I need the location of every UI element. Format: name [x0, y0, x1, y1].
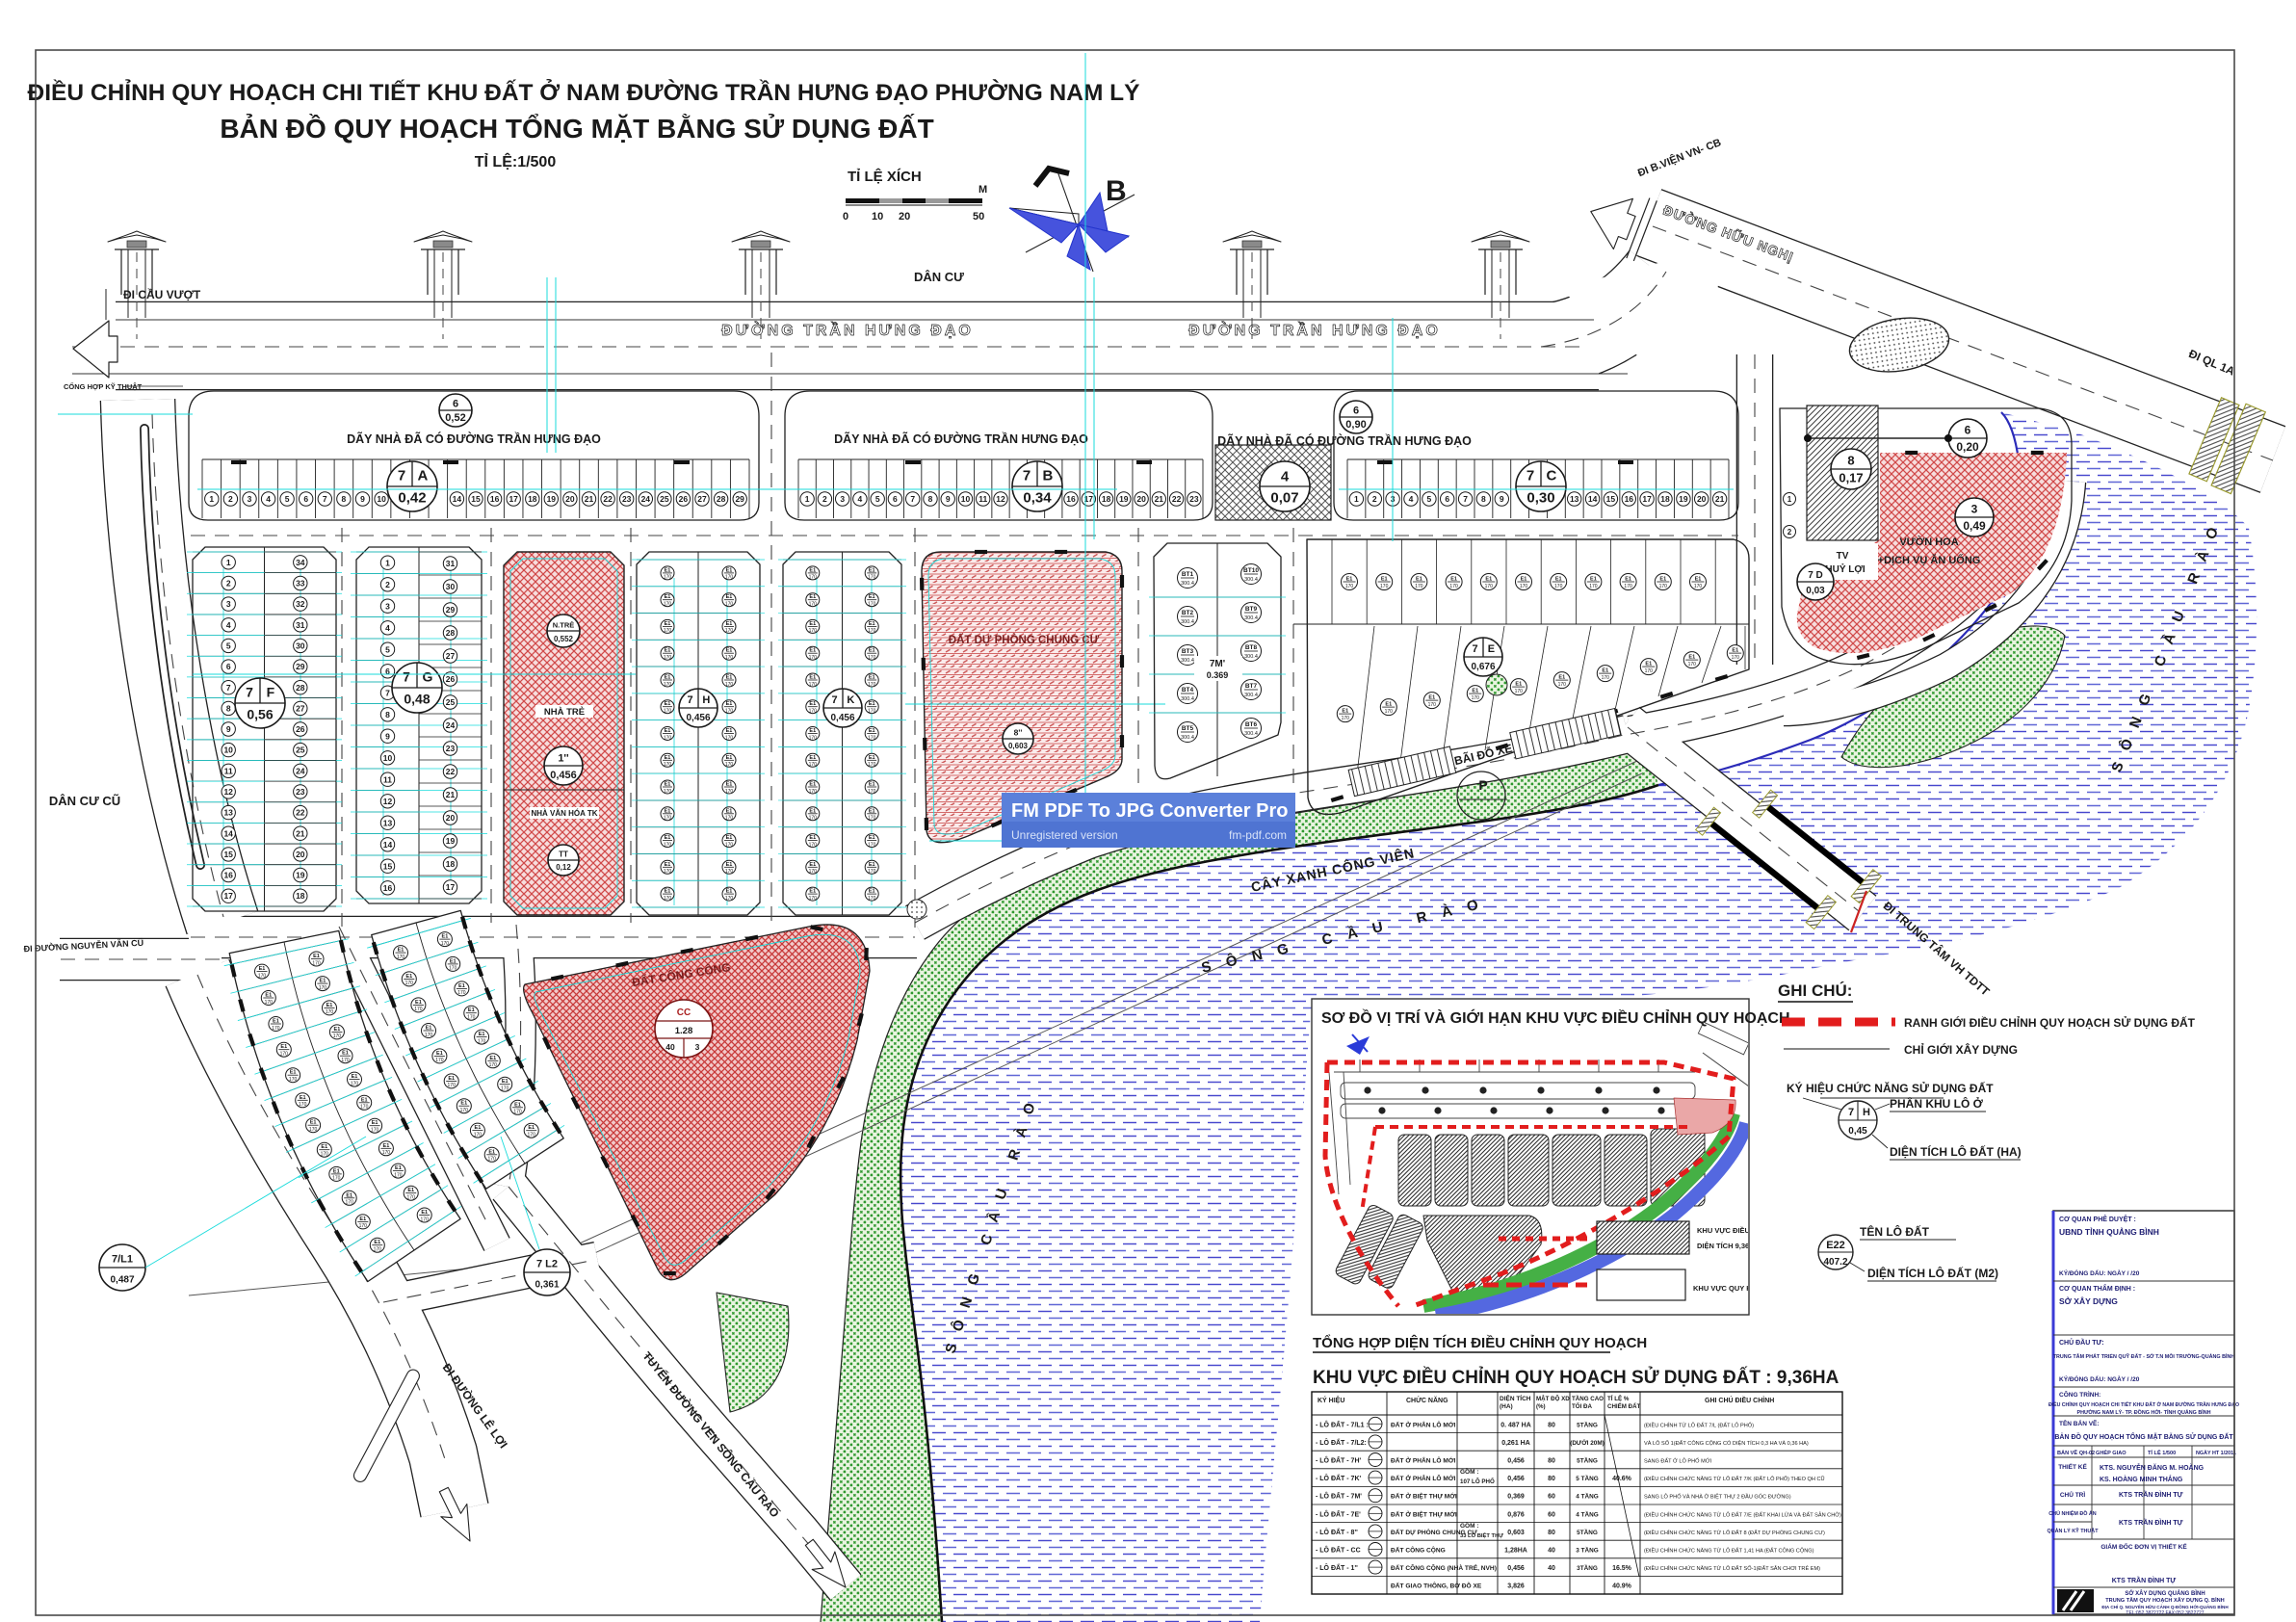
svg-text:170: 170 — [1385, 709, 1394, 715]
svg-text:7: 7 — [323, 494, 327, 504]
svg-text:DÂN CƯ CŨ: DÂN CƯ CŨ — [49, 794, 120, 808]
svg-text:BT7: BT7 — [1245, 683, 1258, 690]
svg-text:12: 12 — [383, 797, 393, 806]
svg-text:E1: E1 — [374, 1240, 380, 1245]
svg-text:170: 170 — [351, 1081, 359, 1086]
svg-text:E1: E1 — [489, 1056, 496, 1061]
svg-text:300.4: 300.4 — [1244, 615, 1258, 621]
svg-text:170: 170 — [1345, 584, 1354, 589]
svg-text:E1: E1 — [1645, 662, 1652, 667]
svg-text:7M': 7M' — [1210, 659, 1225, 669]
svg-text:7/L1: 7/L1 — [112, 1254, 133, 1266]
svg-text:27: 27 — [296, 703, 305, 713]
svg-text:170: 170 — [868, 842, 876, 848]
svg-text:CÔNG TRÌNH:: CÔNG TRÌNH: — [2059, 1390, 2100, 1399]
svg-text:P: P — [1478, 777, 1487, 793]
svg-text:17: 17 — [1642, 494, 1652, 504]
svg-text:170: 170 — [725, 762, 734, 768]
svg-text:NHÀ VĂN HÓA TK: NHÀ VĂN HÓA TK — [531, 809, 597, 818]
svg-text:170: 170 — [1558, 682, 1567, 688]
svg-text:170: 170 — [1624, 584, 1632, 589]
svg-text:3: 3 — [1971, 503, 1978, 516]
svg-text:KHU VỰC ĐIỀU CHỈNH QUY HOẠCH S: KHU VỰC ĐIỀU CHỈNH QUY HOẠCH SỬ DỤNG ĐẤT… — [1313, 1367, 1839, 1388]
svg-text:NHÀ TRẺ: NHÀ TRẺ — [544, 706, 585, 718]
svg-text:E1: E1 — [869, 755, 875, 761]
svg-text:TỈ LỆ 1/500: TỈ LỆ 1/500 — [2148, 1449, 2176, 1456]
svg-text:170: 170 — [488, 1157, 497, 1163]
svg-text:6: 6 — [893, 494, 898, 504]
svg-text:E1: E1 — [468, 1007, 475, 1013]
svg-text:300.4: 300.4 — [1181, 696, 1194, 702]
svg-text:E1: E1 — [1381, 577, 1388, 583]
svg-text:SANG ĐẤT Ở LÔ PHỐ MỚI: SANG ĐẤT Ở LÔ PHỐ MỚI — [1644, 1458, 1712, 1465]
svg-text:170: 170 — [272, 1026, 280, 1032]
svg-text:60: 60 — [1548, 1511, 1555, 1518]
svg-text:170: 170 — [332, 1176, 341, 1182]
svg-text:170: 170 — [299, 1102, 307, 1108]
svg-text:E1: E1 — [726, 648, 733, 654]
svg-text:9: 9 — [360, 494, 365, 504]
svg-text:6: 6 — [226, 662, 231, 671]
svg-text:E1: E1 — [359, 1216, 366, 1222]
svg-text:SƠ ĐỒ VỊ TRÍ VÀ GIỚI HẠN KHU V: SƠ ĐỒ VỊ TRÍ VÀ GIỚI HẠN KHU VỰC ĐIỀU CH… — [1321, 1008, 1790, 1027]
svg-text:TRUNG TÂM PHÁT TRIỂN QUỸ ĐẤT -: TRUNG TÂM PHÁT TRIỂN QUỸ ĐẤT - SỞ T.N MÔ… — [2053, 1352, 2235, 1360]
svg-text:E1: E1 — [869, 862, 875, 868]
svg-text:N.TRẺ: N.TRẺ — [553, 620, 575, 629]
svg-text:E1: E1 — [326, 1003, 333, 1008]
svg-text:CHỦ NHIỆM ĐỒ ÁN: CHỦ NHIỆM ĐỒ ÁN — [2048, 1509, 2097, 1517]
svg-text:0,56: 0,56 — [247, 707, 273, 722]
svg-text:170: 170 — [664, 896, 672, 902]
svg-text:25: 25 — [660, 494, 669, 504]
svg-text:ĐƯỜNG TRẦN HƯNG ĐẠO: ĐƯỜNG TRẦN HƯNG ĐẠO — [721, 321, 974, 339]
svg-text:16.5%: 16.5% — [1612, 1565, 1632, 1572]
svg-text:170: 170 — [312, 960, 321, 966]
svg-text:32: 32 — [296, 599, 305, 609]
svg-text:E1: E1 — [290, 1070, 297, 1076]
svg-text:E1: E1 — [869, 675, 875, 681]
svg-text:170: 170 — [489, 1062, 498, 1068]
svg-text:E1: E1 — [415, 1000, 422, 1006]
svg-text:F: F — [267, 685, 275, 700]
svg-text:1: 1 — [1787, 495, 1792, 504]
svg-text:E1: E1 — [869, 728, 875, 734]
svg-text:ĐIỀU CHỈNH QUY HOẠCH CHI TIẾT: ĐIỀU CHỈNH QUY HOẠCH CHI TIẾT KHU ĐẤT Ở … — [2048, 1400, 2239, 1408]
svg-text:21: 21 — [1155, 494, 1164, 504]
svg-text:7: 7 — [1526, 468, 1534, 484]
svg-text:31: 31 — [296, 620, 305, 630]
svg-text:SANG LÔ PHỐ VÀ NHÀ Ở BIỆT THỰ: SANG LÔ PHỐ VÀ NHÀ Ở BIỆT THỰ 2 ĐẦU GÓC … — [1644, 1493, 1791, 1501]
svg-text:170: 170 — [725, 682, 734, 688]
svg-text:18: 18 — [296, 891, 305, 901]
svg-text:170: 170 — [664, 762, 672, 768]
svg-text:E1: E1 — [809, 594, 816, 600]
svg-text:E1: E1 — [869, 808, 875, 814]
svg-text:TẦNG CAO: TẦNG CAO — [1572, 1396, 1604, 1402]
svg-text:ĐẤT DỰ PHÒNG CHUNG CƯ: ĐẤT DỰ PHÒNG CHUNG CƯ — [949, 634, 1100, 646]
svg-text:E1: E1 — [869, 621, 875, 627]
svg-text:300.4: 300.4 — [1181, 581, 1194, 587]
svg-text:E1: E1 — [320, 979, 326, 984]
svg-text:0,03: 0,03 — [1806, 586, 1825, 596]
svg-text:170: 170 — [1380, 584, 1389, 589]
svg-text:8: 8 — [1481, 494, 1486, 504]
svg-text:20: 20 — [1697, 494, 1707, 504]
svg-text:E1: E1 — [665, 755, 671, 761]
svg-text:E1: E1 — [448, 1076, 455, 1082]
svg-text:0,12: 0,12 — [556, 863, 571, 872]
svg-text:7: 7 — [832, 694, 838, 706]
svg-text:ĐIỀU CHỈNH QUY HOẠCH CHI TIẾT: ĐIỀU CHỈNH QUY HOẠCH CHI TIẾT KHU ĐẤT Ở … — [28, 78, 1140, 106]
svg-text:170: 170 — [725, 602, 734, 608]
svg-text:1.28: 1.28 — [675, 1026, 693, 1036]
svg-text:170: 170 — [725, 735, 734, 741]
svg-text:4: 4 — [385, 623, 390, 633]
svg-text:170: 170 — [309, 1127, 318, 1133]
svg-text:9: 9 — [946, 494, 951, 504]
svg-text:17: 17 — [223, 891, 233, 901]
svg-text:E1: E1 — [346, 1192, 352, 1198]
svg-text:31: 31 — [446, 559, 456, 568]
svg-text:24: 24 — [641, 494, 651, 504]
svg-text:170: 170 — [725, 655, 734, 661]
svg-text:170: 170 — [664, 842, 672, 848]
svg-text:TT: TT — [559, 850, 568, 858]
svg-text:300.4: 300.4 — [1181, 658, 1194, 664]
svg-text:25: 25 — [446, 697, 456, 707]
svg-text:TÊN LÔ ĐẤT: TÊN LÔ ĐẤT — [1860, 1224, 1930, 1239]
svg-text:170: 170 — [809, 869, 818, 875]
svg-text:4: 4 — [1281, 468, 1290, 484]
svg-text:E1: E1 — [665, 621, 671, 627]
svg-text:E1: E1 — [665, 675, 671, 681]
svg-text:170: 170 — [725, 789, 734, 795]
svg-text:19: 19 — [1119, 494, 1129, 504]
svg-text:300.4: 300.4 — [1244, 654, 1258, 660]
svg-text:170: 170 — [1449, 584, 1458, 589]
svg-text:E1: E1 — [809, 862, 816, 868]
svg-text:E1: E1 — [273, 1019, 279, 1025]
svg-text:300.4: 300.4 — [1244, 693, 1258, 698]
svg-text:170: 170 — [664, 575, 672, 581]
svg-text:8: 8 — [385, 710, 390, 719]
svg-text:170: 170 — [1602, 675, 1610, 681]
svg-text:0,552: 0,552 — [554, 635, 574, 643]
svg-text:170: 170 — [868, 896, 876, 902]
svg-text:7: 7 — [1473, 643, 1478, 655]
svg-text:5: 5 — [385, 644, 390, 654]
svg-text:E1: E1 — [1602, 668, 1608, 674]
svg-text:CƠ QUAN THẨM ĐỊNH :: CƠ QUAN THẨM ĐỊNH : — [2059, 1284, 2135, 1293]
svg-text:33: 33 — [296, 579, 305, 589]
svg-text:E1: E1 — [265, 993, 272, 999]
svg-text:7: 7 — [1023, 468, 1031, 484]
svg-text:E1: E1 — [726, 862, 733, 868]
svg-text:5: 5 — [875, 494, 880, 504]
svg-text:C: C — [1546, 468, 1556, 484]
svg-text:170: 170 — [394, 1172, 403, 1178]
svg-text:16: 16 — [490, 494, 500, 504]
svg-text:DÃY NHÀ ĐÃ CÓ ĐƯỜNG TRẦN HƯNG: DÃY NHÀ ĐÃ CÓ ĐƯỜNG TRẦN HƯNG ĐẠO — [834, 432, 1088, 446]
svg-text:ĐƯỜNG TRẦN HƯNG ĐẠO: ĐƯỜNG TRẦN HƯNG ĐẠO — [1188, 321, 1441, 339]
svg-text:170: 170 — [868, 602, 876, 608]
svg-text:H: H — [702, 694, 710, 706]
svg-text:300.4: 300.4 — [1181, 619, 1194, 625]
svg-text:21: 21 — [296, 828, 305, 838]
svg-text:0,369: 0,369 — [1507, 1494, 1525, 1501]
svg-text:28: 28 — [296, 683, 305, 693]
svg-text:MẬT ĐỘ XD: MẬT ĐỘ XD — [1536, 1395, 1570, 1402]
svg-text:(%): (%) — [1536, 1403, 1546, 1410]
svg-text:12: 12 — [223, 787, 233, 797]
svg-text:13: 13 — [223, 808, 233, 818]
svg-text:14: 14 — [223, 828, 233, 838]
svg-text:170: 170 — [513, 1110, 522, 1115]
svg-text:13: 13 — [1570, 494, 1579, 504]
svg-text:CHỦ TRÌ: CHỦ TRÌ — [2060, 1490, 2086, 1499]
svg-text:170: 170 — [868, 628, 876, 634]
svg-text:KÝ HIỆU: KÝ HIỆU — [1318, 1396, 1344, 1404]
svg-text:7: 7 — [398, 468, 405, 484]
svg-text:170: 170 — [441, 941, 450, 947]
svg-text:E1: E1 — [514, 1102, 521, 1108]
svg-text:170: 170 — [725, 869, 734, 875]
svg-text:CHỈ GIỚI XÂY DỰNG: CHỈ GIỚI XÂY DỰNG — [1904, 1042, 2018, 1057]
svg-text:E1: E1 — [665, 594, 671, 600]
svg-text:3: 3 — [840, 494, 845, 504]
svg-text:170: 170 — [725, 628, 734, 634]
svg-text:80: 80 — [1548, 1476, 1555, 1482]
svg-text:0,49: 0,49 — [1963, 519, 1986, 533]
svg-text:BẢN VẼ QH-02: BẢN VẼ QH-02 — [2057, 1450, 2095, 1456]
svg-text:14: 14 — [1588, 494, 1598, 504]
svg-text:170: 170 — [868, 735, 876, 741]
svg-text:4: 4 — [226, 620, 231, 630]
svg-text:E1: E1 — [726, 808, 733, 814]
svg-text:170: 170 — [258, 973, 267, 979]
svg-text:UBND TỈNH QUẢNG BÌNH: UBND TỈNH QUẢNG BÌNH — [2059, 1226, 2159, 1237]
svg-text:40.6%: 40.6% — [1612, 1476, 1632, 1482]
svg-text:E1: E1 — [726, 755, 733, 761]
svg-text:170: 170 — [474, 1132, 483, 1138]
svg-text:E: E — [1488, 643, 1495, 655]
svg-text:E1: E1 — [726, 835, 733, 841]
svg-text:26: 26 — [296, 724, 305, 734]
svg-text:E1: E1 — [869, 782, 875, 788]
svg-text:KTS. NGUYỄN ĐĂNG M. HOÀNG: KTS. NGUYỄN ĐĂNG M. HOÀNG — [2100, 1463, 2205, 1472]
svg-text:E1: E1 — [1428, 695, 1435, 701]
svg-text:20: 20 — [446, 813, 456, 823]
svg-text:170: 170 — [359, 1223, 368, 1229]
svg-text:15: 15 — [223, 850, 233, 859]
svg-text:E1: E1 — [809, 701, 816, 707]
svg-text:1: 1 — [209, 494, 214, 504]
svg-text:24: 24 — [446, 720, 456, 730]
svg-text:170: 170 — [501, 1086, 509, 1092]
svg-text:DIỆN TÍCH LÔ ĐẤT (M2): DIỆN TÍCH LÔ ĐẤT (M2) — [1867, 1266, 1998, 1280]
svg-text:E1: E1 — [869, 835, 875, 841]
svg-text:27: 27 — [446, 651, 456, 661]
svg-text:E1: E1 — [1416, 577, 1422, 583]
svg-text:7: 7 — [688, 694, 693, 706]
svg-text:5: 5 — [226, 641, 231, 651]
svg-text:7: 7 — [403, 669, 410, 685]
svg-text:22: 22 — [296, 808, 305, 818]
svg-text:0,20: 0,20 — [1956, 440, 1979, 454]
svg-text:E1: E1 — [665, 862, 671, 868]
svg-text:3: 3 — [385, 601, 390, 611]
svg-text:11: 11 — [224, 766, 233, 775]
svg-text:KS. HOÀNG MINH THẮNG: KS. HOÀNG MINH THẮNG — [2100, 1475, 2183, 1483]
svg-text:7: 7 — [385, 688, 390, 697]
svg-text:2: 2 — [385, 580, 390, 589]
svg-text:170: 170 — [265, 1000, 274, 1006]
svg-text:170: 170 — [664, 709, 672, 715]
svg-text:E1: E1 — [869, 701, 875, 707]
svg-text:15: 15 — [471, 494, 481, 504]
svg-text:407.2: 407.2 — [1823, 1257, 1847, 1268]
svg-text:DIỆN TÍCH: DIỆN TÍCH — [1500, 1394, 1531, 1402]
svg-text:E1: E1 — [502, 1079, 509, 1085]
svg-text:18: 18 — [446, 859, 456, 869]
svg-text:16: 16 — [223, 871, 233, 880]
svg-text:10: 10 — [223, 746, 233, 755]
svg-text:170: 170 — [868, 762, 876, 768]
svg-text:E1: E1 — [665, 782, 671, 788]
svg-text:14: 14 — [383, 840, 393, 850]
svg-text:170: 170 — [664, 682, 672, 688]
svg-text:E1: E1 — [528, 1125, 535, 1131]
svg-text:4: 4 — [858, 494, 863, 504]
svg-text:TỈ LỆ %: TỈ LỆ % — [1607, 1395, 1630, 1402]
svg-text:BT3: BT3 — [1182, 648, 1194, 655]
svg-text:11: 11 — [383, 774, 392, 784]
svg-text:E1: E1 — [395, 1165, 402, 1171]
svg-text:CƠ QUAN PHÊ DUYỆT :: CƠ QUAN PHÊ DUYỆT : — [2059, 1215, 2136, 1223]
svg-text:E1: E1 — [488, 1149, 495, 1155]
svg-text:11: 11 — [978, 494, 987, 504]
svg-text:TRUNG TÂM QUY HOẠCH XÂY DỰNG Q: TRUNG TÂM QUY HOẠCH XÂY DỰNG Q. BÌNH — [2105, 1596, 2224, 1604]
svg-text:E1: E1 — [869, 594, 875, 600]
svg-text:0.369: 0.369 — [1207, 670, 1229, 680]
svg-text:17: 17 — [446, 882, 456, 892]
svg-text:80: 80 — [1548, 1422, 1555, 1428]
svg-text:170: 170 — [1688, 662, 1697, 667]
svg-text:3: 3 — [226, 599, 231, 609]
svg-text:8: 8 — [1847, 453, 1854, 467]
svg-text:50: 50 — [973, 211, 984, 222]
svg-text:6: 6 — [453, 398, 458, 409]
svg-text:E1: E1 — [1590, 577, 1597, 583]
svg-text:3: 3 — [695, 1042, 700, 1052]
svg-text:E1: E1 — [809, 567, 816, 573]
svg-text:(ĐIỀU CHỈNH CHỨC NĂNG TỪ LÔ ĐẤ: (ĐIỀU CHỈNH CHỨC NĂNG TỪ LÔ ĐẤT SỐ-1(ĐẤT… — [1644, 1565, 1820, 1572]
svg-text:16: 16 — [1625, 494, 1634, 504]
svg-text:E1: E1 — [280, 1044, 287, 1050]
svg-text:E1: E1 — [665, 567, 671, 573]
svg-text:E1: E1 — [310, 1120, 317, 1126]
svg-text:E1: E1 — [479, 1032, 485, 1037]
svg-text:SỞ XÂY DỰNG QUẢNG BÌNH: SỞ XÂY DỰNG QUẢNG BÌNH — [2125, 1589, 2205, 1597]
svg-text:170: 170 — [725, 575, 734, 581]
svg-text:34: 34 — [296, 558, 305, 567]
svg-text:0,487: 0,487 — [110, 1274, 134, 1285]
svg-text:8: 8 — [342, 494, 347, 504]
svg-text:E1: E1 — [726, 621, 733, 627]
svg-text:5: 5 — [1427, 494, 1432, 504]
svg-text:E1: E1 — [460, 1101, 467, 1107]
svg-text:300.4: 300.4 — [1244, 731, 1258, 737]
svg-text:170: 170 — [421, 1216, 430, 1222]
svg-text:60: 60 — [1548, 1494, 1555, 1501]
svg-text:170: 170 — [1485, 584, 1494, 589]
svg-text:E1: E1 — [1688, 655, 1695, 661]
svg-text:2: 2 — [226, 579, 231, 589]
svg-text:E1: E1 — [726, 567, 733, 573]
svg-text:170: 170 — [449, 966, 457, 972]
svg-text:22: 22 — [603, 494, 613, 504]
svg-text:9: 9 — [1500, 494, 1504, 504]
svg-text:28: 28 — [717, 494, 726, 504]
svg-text:20: 20 — [1136, 494, 1146, 504]
svg-text:E1: E1 — [458, 983, 465, 989]
svg-text:13: 13 — [383, 818, 393, 827]
svg-text:E1: E1 — [1515, 682, 1522, 688]
svg-text:E1: E1 — [869, 567, 875, 573]
svg-text:0: 0 — [843, 211, 848, 222]
svg-text:(HA): (HA) — [1500, 1403, 1513, 1410]
svg-text:0,361: 0,361 — [535, 1279, 559, 1290]
svg-text:25: 25 — [296, 746, 305, 755]
svg-text:+DỊCH VỤ ĂN UỐNG: +DỊCH VỤ ĂN UỐNG — [1878, 553, 1981, 566]
svg-text:19: 19 — [296, 871, 305, 880]
svg-text:170: 170 — [868, 789, 876, 795]
svg-text:170: 170 — [1515, 689, 1524, 694]
svg-text:26: 26 — [446, 674, 456, 684]
svg-text:170: 170 — [664, 655, 672, 661]
svg-text:E1: E1 — [1450, 577, 1457, 583]
svg-text:170: 170 — [809, 816, 818, 822]
svg-text:FM PDF To JPG Converter Pro: FM PDF To JPG Converter Pro — [1011, 800, 1288, 822]
svg-text:E1: E1 — [809, 728, 816, 734]
svg-text:E1: E1 — [1385, 702, 1392, 708]
svg-text:E1: E1 — [475, 1125, 482, 1131]
svg-text:170: 170 — [868, 816, 876, 822]
svg-text:0,603: 0,603 — [1507, 1530, 1525, 1536]
svg-text:DÂN CƯ: DÂN CƯ — [914, 270, 964, 284]
svg-text:170: 170 — [664, 789, 672, 795]
svg-text:E1: E1 — [809, 808, 816, 814]
svg-text:40: 40 — [665, 1042, 675, 1052]
svg-text:E1: E1 — [809, 675, 816, 681]
svg-text:TỐI ĐA: TỐI ĐA — [1572, 1403, 1592, 1410]
svg-text:1: 1 — [385, 558, 390, 567]
svg-text:170: 170 — [868, 575, 876, 581]
svg-text:170: 170 — [809, 842, 818, 848]
svg-text:7 L2: 7 L2 — [536, 1259, 558, 1270]
svg-text:E1: E1 — [1342, 709, 1348, 715]
svg-text:1'': 1'' — [558, 753, 569, 765]
svg-text:22: 22 — [1172, 494, 1182, 504]
svg-text:K: K — [847, 694, 854, 706]
svg-text:E1: E1 — [442, 934, 449, 940]
svg-text:E1: E1 — [665, 728, 671, 734]
svg-text:0,456: 0,456 — [830, 713, 854, 723]
svg-text:107 LÔ PHỐ: 107 LÔ PHỐ — [1460, 1478, 1495, 1485]
svg-text:170: 170 — [1659, 584, 1668, 589]
svg-text:NGÀY HT 1/2011: NGÀY HT 1/2011 — [2196, 1450, 2236, 1456]
svg-text:17: 17 — [509, 494, 518, 504]
